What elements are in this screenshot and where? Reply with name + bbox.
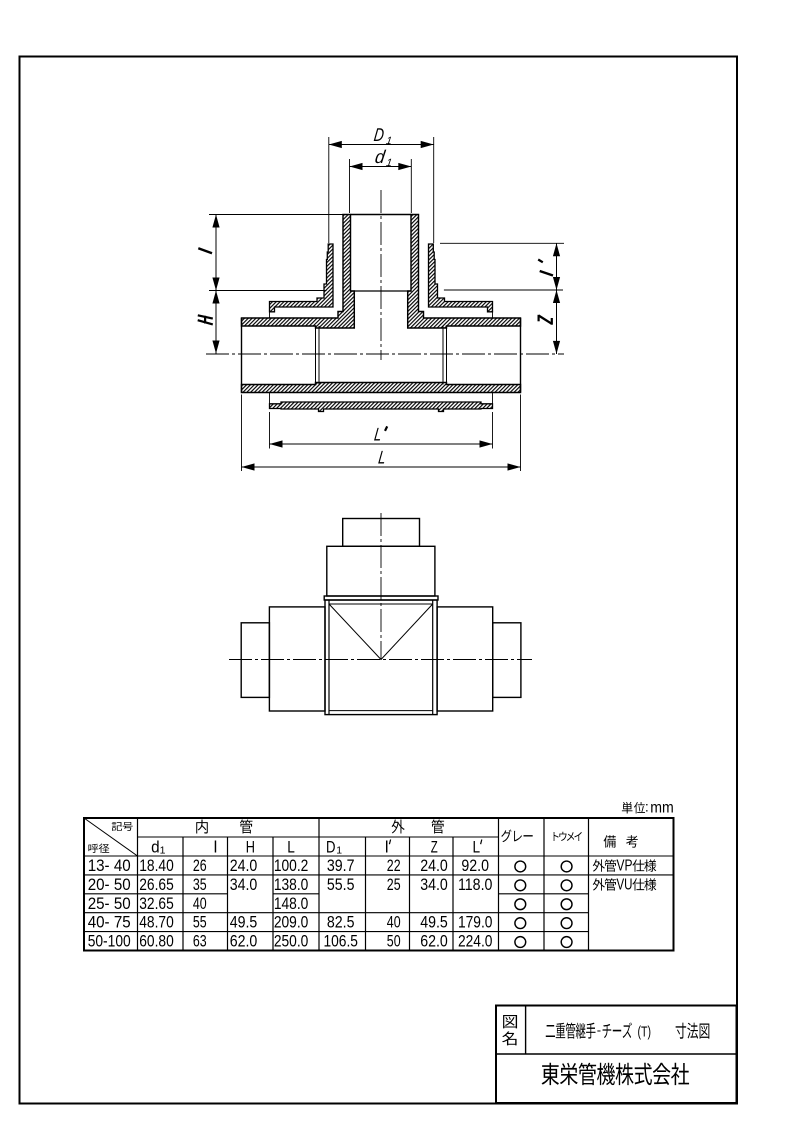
svg-text:(T): (T)	[638, 1023, 652, 1040]
svg-text:1: 1	[336, 845, 342, 857]
svg-text:L: L	[473, 838, 481, 856]
svg-text:50-100: 50-100	[88, 933, 131, 951]
svg-text:Z: Z	[431, 838, 438, 856]
svg-text:62.0: 62.0	[230, 933, 258, 951]
svg-text:100.2: 100.2	[274, 857, 309, 875]
svg-text:d: d	[151, 838, 160, 856]
svg-text:118.0: 118.0	[458, 876, 493, 894]
svg-text:-: -	[597, 1023, 601, 1038]
svg-text:179.0: 179.0	[458, 914, 493, 932]
svg-text:VP: VP	[617, 858, 633, 875]
svg-text:50: 50	[387, 933, 401, 951]
svg-text:26.65: 26.65	[139, 876, 174, 894]
svg-text:22: 22	[387, 857, 401, 875]
svg-text:60.80: 60.80	[139, 933, 174, 951]
svg-text:24.0: 24.0	[420, 857, 448, 875]
svg-text:18.40: 18.40	[139, 857, 174, 875]
svg-text:55: 55	[193, 914, 207, 932]
svg-text:20- 50: 20- 50	[88, 876, 131, 894]
svg-text:106.5: 106.5	[323, 933, 358, 951]
svg-text:49.5: 49.5	[230, 914, 258, 932]
svg-text:H: H	[246, 838, 255, 856]
svg-text:25- 50: 25- 50	[88, 895, 131, 913]
svg-text:l: l	[214, 838, 218, 856]
svg-text:224.0: 224.0	[458, 933, 493, 951]
svg-text:L: L	[287, 838, 295, 856]
svg-text:32.65: 32.65	[139, 895, 174, 913]
svg-text:34.0: 34.0	[230, 876, 258, 894]
svg-text:148.0: 148.0	[274, 895, 309, 913]
svg-text:mm: mm	[650, 800, 674, 817]
svg-text:24.0: 24.0	[230, 857, 258, 875]
svg-text:209.0: 209.0	[274, 914, 309, 932]
svg-text:40- 75: 40- 75	[88, 914, 131, 932]
svg-text:82.5: 82.5	[327, 914, 355, 932]
svg-text:250.0: 250.0	[274, 933, 309, 951]
svg-text:62.0: 62.0	[420, 933, 448, 951]
svg-text:25: 25	[387, 876, 401, 894]
svg-text:D: D	[326, 838, 336, 856]
svg-text:63: 63	[193, 933, 207, 951]
svg-text:26: 26	[193, 857, 207, 875]
svg-text:48.70: 48.70	[139, 914, 174, 932]
svg-text:l: l	[385, 838, 389, 856]
svg-text:92.0: 92.0	[461, 857, 489, 875]
svg-text:40: 40	[193, 895, 207, 913]
svg-text:13- 40: 13- 40	[88, 857, 131, 875]
svg-text:40: 40	[387, 914, 401, 932]
svg-text:49.5: 49.5	[420, 914, 448, 932]
svg-text:VU: VU	[617, 877, 633, 894]
svg-text:39.7: 39.7	[327, 857, 355, 875]
svg-text:35: 35	[193, 876, 207, 894]
svg-text:55.5: 55.5	[327, 876, 355, 894]
svg-text::: :	[645, 799, 649, 815]
svg-text:138.0: 138.0	[274, 876, 309, 894]
svg-text:1: 1	[160, 845, 166, 857]
svg-text:34.0: 34.0	[420, 876, 448, 894]
